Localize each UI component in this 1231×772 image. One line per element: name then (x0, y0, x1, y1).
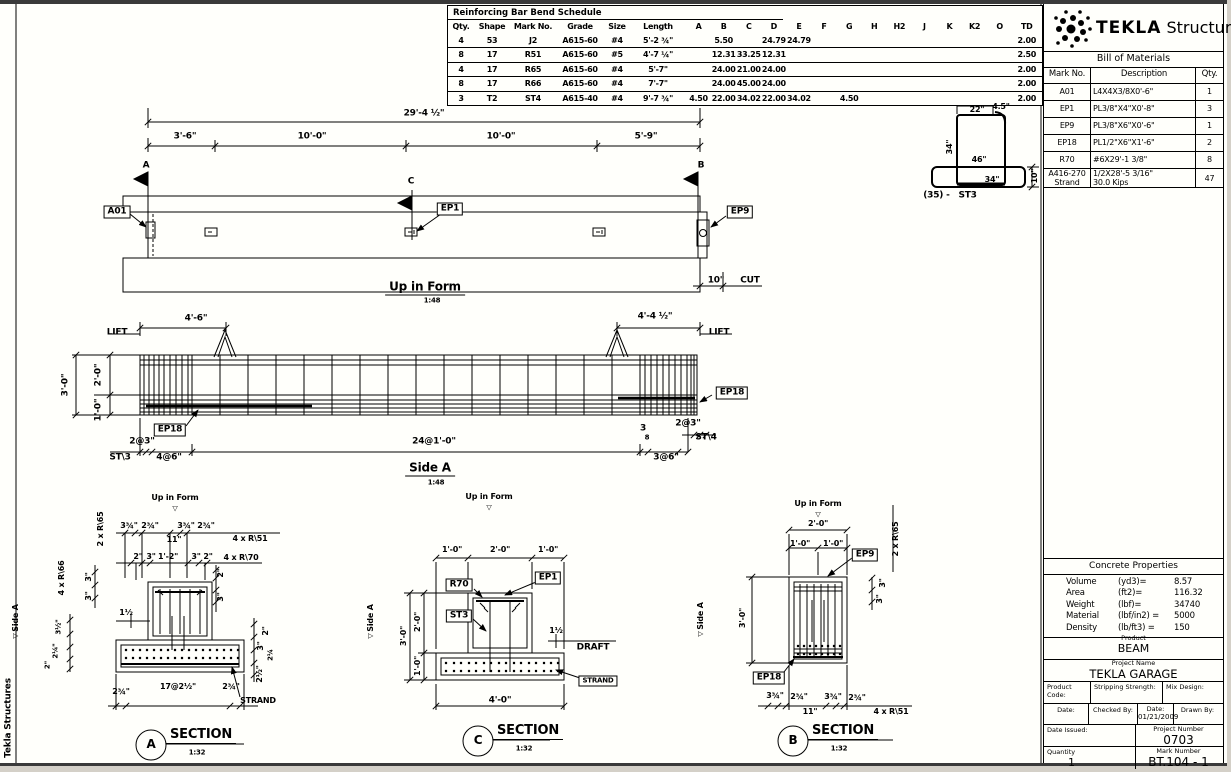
product-box: Product BEAM (1044, 634, 1223, 660)
date2-label: Date: (1138, 703, 1173, 713)
title-up-in-form: Up in Form (385, 281, 465, 296)
cell: Mark No. (1044, 67, 1091, 83)
concrete-row: Weight(lbf)=34740 (1044, 599, 1223, 611)
bom-row: A416-270 Strand1/2X28'-5 3/16" 30.0 Kips… (1044, 169, 1223, 188)
drawn-by-cell: Drawn By: (1174, 703, 1221, 724)
cell: Size (604, 22, 630, 31)
dim-a-mid-4: 3" (191, 553, 200, 561)
cell: H2 (887, 22, 912, 31)
date-issued-cell: Date Issued: (1044, 724, 1136, 747)
cell: #4 (604, 94, 630, 103)
dim-b-bot-11: 11" (803, 708, 818, 716)
checked-by-label: Checked By: (1089, 703, 1137, 714)
cell: K (937, 22, 962, 31)
dim-a-mid-3: 1'-2" (158, 553, 178, 561)
product-code-label: Product Code: (1044, 681, 1090, 699)
cell: F (811, 22, 836, 31)
cell: 24.00 (761, 65, 786, 74)
cell: #4 (604, 65, 630, 74)
project-label: Project Name (1044, 659, 1223, 667)
cell: EP9 (1044, 118, 1091, 134)
dim-a-top-11: 11" (167, 536, 182, 544)
label-up-in-form-c: Up in Form (465, 493, 512, 501)
up-arrow-c: ▽ (486, 505, 491, 512)
cell: PL3/8"X4"X0'-8" (1091, 101, 1196, 117)
cell: 1 (1196, 84, 1223, 100)
cell: 22.00 (711, 94, 736, 103)
cell: 45.00 (736, 79, 761, 88)
section-mark-a: A (143, 162, 150, 171)
cell: Qty. (1196, 67, 1223, 83)
cell: A01 (1044, 84, 1091, 100)
concrete-row: Material(lbf/in2) =5000 (1044, 611, 1223, 623)
dim-b-right-3a: 3" (879, 578, 887, 587)
cell: 4.50 (686, 94, 711, 103)
label-ep1-c: EP1 (535, 572, 561, 585)
cell: TD (1012, 22, 1041, 31)
cell: 4 (448, 65, 474, 74)
cell: C (736, 22, 761, 31)
cell: Grade (556, 22, 604, 31)
label-st3-shape: (35) - ST3 (923, 192, 977, 201)
cell: 24.00 (711, 65, 736, 74)
section-mark-b: B (698, 162, 705, 171)
cell: PL1/2"X6"X1'-6" (1091, 135, 1196, 151)
dim-st3-22: 22" (970, 106, 985, 114)
stripping-cell: Stripping Strength: (1091, 681, 1163, 703)
mix-design-label: Mix Design: (1163, 681, 1221, 691)
cell: 5000 (1174, 611, 1231, 621)
cell: 24.79 (761, 36, 786, 45)
label-ep9-b: EP9 (852, 549, 878, 562)
schedule-header-row: Qty.ShapeMark No.GradeSizeLengthABCDEFGH… (448, 20, 1042, 34)
cell: O (987, 22, 1012, 31)
dim-b-top-2: 1'-0" (823, 540, 843, 548)
cell: R51 (510, 50, 556, 59)
concrete-row: Area(ft2)=116.32 (1044, 588, 1223, 600)
cell: #5 (604, 50, 630, 59)
mark-number-value: BT.104 - 1 (1136, 755, 1221, 769)
quantity-row: Quantity 1 Mark Number BT.104 - 1 (1044, 746, 1223, 767)
dim-c-upper: 2'-0" (414, 612, 422, 632)
cell: 3 (1196, 101, 1223, 117)
cell: (lbf/in2) = (1118, 611, 1174, 621)
dim-c-top-3: 1'-0" (538, 546, 558, 554)
marker-side-a-1: Side A (12, 604, 20, 631)
label-r70-c: R70 (446, 579, 473, 592)
section-b-title: SECTION (808, 724, 878, 740)
label-4xr70-a: 4 x R\70 (224, 554, 259, 562)
mark-number-label: Mark Number (1136, 746, 1221, 755)
dim-st3-10: 10" (1031, 169, 1039, 184)
project-box: Project Name TEKLA GARAGE (1044, 659, 1223, 682)
label-cut: CUT (740, 277, 759, 286)
cell: T2 (474, 94, 510, 103)
dim-a-mid-5: 2" (203, 553, 212, 561)
label-up-in-form-a: Up in Form (151, 494, 198, 502)
dim-a-bot-1: 2¾" (112, 688, 129, 696)
cell: 9'-7 ¾" (630, 94, 686, 103)
cell: 2.50 (1012, 50, 1041, 59)
label-4xr51-a: 4 x R\51 (233, 535, 268, 543)
marker-side-a-3: Side A (697, 602, 705, 629)
quantity-label: Quantity (1044, 746, 1135, 756)
bom-header: Mark No.DescriptionQty. (1044, 67, 1223, 84)
label-ep9: EP9 (727, 206, 753, 219)
dim-sidea-depth: 3'-0" (62, 374, 71, 397)
date2-value: 01/21/2009 (1138, 713, 1173, 721)
dim-overall-length: 29'-4 ½" (404, 110, 445, 119)
dim-a-bot-3: 2¾" (222, 683, 239, 691)
dim-cut: 10" (708, 277, 725, 286)
issued-row: Date Issued: Project Number 0703 (1044, 724, 1223, 747)
section-c-scale: 1:32 (516, 746, 533, 753)
dim-b-bot-2: 2¾" (790, 693, 807, 701)
cell: Shape (474, 22, 510, 31)
cell: 53 (474, 36, 510, 45)
cell: 8 (448, 50, 474, 59)
bom-header-row: Mark No.DescriptionQty. (1044, 67, 1223, 84)
cell: 12.31 (761, 50, 786, 59)
dim-a-right-3: 3" (217, 592, 225, 601)
cell: Area (1066, 588, 1118, 598)
schedule-row: 417R65A615-60#45'-7"24.0021.0024.002.00 (448, 62, 1042, 77)
dim-a-strand-r4: 2½" (256, 665, 264, 682)
marker-side-a-1t: ▽ (13, 633, 20, 638)
cell: (yd3)= (1118, 577, 1174, 587)
schedule-title: Reinforcing Bar Bend Schedule (448, 6, 783, 20)
marker-side-a-2: Side A (367, 604, 375, 631)
schedule-row: 817R51A615-60#54'-7 ¼"12.3133.2512.312.5… (448, 47, 1042, 62)
dim-b-right-3b: 3" (876, 594, 884, 603)
cell: A615-60 (556, 65, 604, 74)
dim-seg-3: 10'-0" (487, 133, 516, 142)
bom-title: Bill of Materials (1044, 51, 1223, 68)
dim-st3-46: 46" (972, 156, 987, 164)
dim-lift-right: 4'-4 ½" (638, 313, 673, 322)
cell: Length (630, 22, 686, 31)
cell: ST4 (510, 94, 556, 103)
cell: 4 (448, 36, 474, 45)
marker-side-a-2t: ▽ (368, 633, 375, 638)
cell: #4 (604, 36, 630, 45)
cell: 24.79 (786, 36, 811, 45)
project-number-value: 0703 (1136, 733, 1221, 747)
schedule-row: 817R66A615-60#47'-7"24.0045.0024.002.00 (448, 76, 1042, 91)
cell: 24.00 (711, 79, 736, 88)
cell: (ft2)= (1118, 588, 1174, 598)
cell: 8.57 (1174, 577, 1231, 587)
cell: 17 (474, 65, 510, 74)
scale-up-in-form: 1:48 (424, 298, 441, 305)
dim-st3-45: 4.5" (992, 103, 1010, 111)
cell: 21.00 (736, 65, 761, 74)
cell: A (686, 22, 711, 31)
concrete-row: Volume(yd3)=8.57 (1044, 576, 1223, 588)
cell: 34.02 (786, 94, 811, 103)
label-st3-c: ST3 (446, 610, 472, 623)
cell: 5.50 (711, 36, 736, 45)
concrete-properties: Volume(yd3)=8.57Area(ft2)=116.32Weight(l… (1044, 573, 1223, 638)
dim-spacing-right-1: 2@3" (675, 420, 700, 429)
cell: A615-60 (556, 50, 604, 59)
codes-row: Product Code: Stripping Strength: Mix De… (1044, 681, 1223, 704)
cell: R65 (510, 65, 556, 74)
dim-b-top-1: 1'-0" (790, 540, 810, 548)
cell: 33.25 (736, 50, 761, 59)
cell: A416-270 Strand (1044, 169, 1091, 187)
dim-b-top: 2'-0" (808, 520, 828, 528)
cell: A615-40 (556, 94, 604, 103)
cell: Description (1091, 67, 1196, 83)
cell: Weight (1066, 600, 1118, 610)
cell: 17 (474, 79, 510, 88)
label-2xr65-a: 2 x R\65 (97, 512, 105, 547)
date-label: Date: (1044, 703, 1088, 714)
cell: 116.32 (1174, 588, 1231, 598)
cell: J (912, 22, 937, 31)
label-lift-right: LIFT (709, 329, 730, 338)
dim-a-top-3: 3¾" (177, 522, 194, 530)
dim-a-left-3a: 3" (85, 572, 93, 581)
dim-a-strand-l2: 2¼" (53, 643, 60, 658)
cell: R70 (1044, 152, 1091, 168)
dim-c-lower: 1'-0" (414, 656, 422, 676)
dim-b-bot-4: 2¾" (848, 694, 865, 702)
cell: 5'-7" (630, 65, 686, 74)
dim-a-right-2: 2" (217, 568, 225, 577)
dim-seg-1: 3'-6" (174, 133, 197, 142)
dim-spacing-left-2: 4@6" (156, 454, 181, 463)
quantity-value: 1 (1044, 756, 1135, 769)
dim-a-strand-r3: 2¼ (268, 649, 275, 661)
cell: L4X4X3/8X0'-6" (1091, 84, 1196, 100)
cell: 4'-7 ¼" (630, 50, 686, 59)
product-value: BEAM (1044, 642, 1223, 655)
cell: Qty. (448, 22, 474, 31)
cell: J2 (510, 36, 556, 45)
bom-row: R70#6X29'-1 3/8"8 (1044, 152, 1223, 169)
schedule-body: 453J2A615-60#45'-2 ¾"5.5024.7924.792.008… (448, 34, 1042, 106)
label-ep18-sidea-right: EP18 (716, 387, 748, 400)
schedule-row: 453J2A615-60#45'-2 ¾"5.5024.7924.792.00 (448, 34, 1042, 48)
section-b-letter: B (789, 734, 798, 746)
brand-header: TEKLA Structures (1044, 4, 1223, 52)
dim-seg-4: 5'-9" (635, 133, 658, 142)
title-side-a: Side A (405, 462, 455, 477)
tekla-logo-icon (1050, 7, 1094, 51)
cell: Material (1066, 611, 1118, 621)
cell: 1/2X28'-5 3/16" 30.0 Kips (1091, 169, 1196, 187)
dim-a-strand-l1: 3½" (56, 619, 63, 634)
dim-b-bot-1: 3¾" (766, 692, 783, 700)
bom-row: EP9PL3/8"X6"X0'-6"1 (1044, 118, 1223, 135)
dim-b-bot-3: 3¾" (824, 693, 841, 701)
cell: #6X29'-1 3/8" (1091, 152, 1196, 168)
dim-spacing-left-1: 2@3" (129, 438, 154, 447)
mix-design-cell: Mix Design: (1163, 681, 1221, 703)
stripping-label: Stripping Strength: (1091, 681, 1162, 691)
cell: A615-60 (556, 36, 604, 45)
date-cell: Date: (1044, 703, 1089, 724)
cell: 1 (1196, 118, 1223, 134)
dim-sidea-lower: 1'-0" (95, 399, 104, 422)
label-ep1: EP1 (437, 203, 463, 216)
brand-name: TEKLA Structures (1096, 18, 1231, 38)
cell: E (786, 22, 811, 31)
concrete-row: Density(lb/ft3) =150 (1044, 622, 1223, 634)
up-arrow-b: ▽ (815, 512, 820, 519)
cell: 34.02 (736, 94, 761, 103)
dim-c-bot: 4'-0" (489, 697, 512, 706)
dim-seg-2: 10'-0" (298, 133, 327, 142)
brand-name-bold: TEKLA (1096, 18, 1161, 38)
cell: 4.50 (837, 94, 862, 103)
dim-c-depth: 3'-0" (400, 626, 408, 646)
dim-a-top-2: 2¾" (141, 522, 158, 530)
cell: 2.00 (1012, 36, 1041, 45)
up-arrow-a: ▽ (172, 506, 177, 513)
label-a01: A01 (104, 206, 131, 219)
dim-a-bot-2: 17@2½" (160, 683, 196, 691)
dim-a-strand-r2: 3" (257, 641, 265, 650)
cell: 2.00 (1012, 79, 1041, 88)
cell: B (711, 22, 736, 31)
cell: PL3/8"X6"X0'-6" (1091, 118, 1196, 134)
label-strand-a: STRAND (240, 697, 276, 705)
dim-gap-num: 3 (640, 425, 646, 434)
dim-c-top-1: 1'-0" (442, 546, 462, 554)
label-lift-left: LIFT (107, 329, 128, 338)
schedule-header: Qty.ShapeMark No.GradeSizeLengthABCDEFGH… (448, 20, 1042, 34)
cell: (lb/ft3) = (1118, 623, 1174, 633)
date2-cell: Date: 01/21/2009 (1138, 703, 1174, 724)
bom-body: A01L4X4X3/8X0'-6"1EP1PL3/8"X4"X0'-8"3EP9… (1044, 84, 1223, 188)
label-4xr51-b: 4 x R\51 (874, 708, 909, 716)
cell: 7'-7" (630, 79, 686, 88)
drawing-sheet: Reinforcing Bar Bend Schedule Qty.ShapeM… (0, 0, 1231, 772)
cell: 3 (448, 94, 474, 103)
section-mark-c: C (408, 178, 414, 187)
section-c-letter: C (474, 734, 483, 746)
dim-a-top-4: 2¾" (197, 522, 214, 530)
project-value: TEKLA GARAGE (1044, 667, 1223, 681)
section-c-title: SECTION (493, 724, 563, 740)
cell: 150 (1174, 623, 1231, 633)
dim-a-top-1: 3¾" (120, 522, 137, 530)
cell: EP1 (1044, 101, 1091, 117)
cell: Density (1066, 623, 1118, 633)
bom-row: EP1PL3/8"X4"X0'-8"3 (1044, 101, 1223, 118)
scale-side-a: 1:48 (428, 480, 445, 487)
label-2xr65-b: 2 x R\65 (892, 522, 900, 557)
label-st4-sidea: ST\4 (695, 434, 716, 443)
cell: EP18 (1044, 135, 1091, 151)
label-draft-c: DRAFT (577, 644, 610, 653)
project-number-label: Project Number (1136, 724, 1221, 733)
section-a-title: SECTION (166, 728, 236, 744)
label-strand-c: STRAND (578, 676, 617, 687)
cell: D (761, 22, 786, 31)
label-st3-sidea: ST\3 (109, 454, 130, 463)
label-4xr66-a: 4 x R\66 (58, 561, 66, 596)
cell: 22.00 (761, 94, 786, 103)
dim-a-mid-2: 3" (146, 553, 155, 561)
cell: 2.00 (1012, 94, 1041, 103)
dim-a-strand-r1: 2" (262, 626, 270, 635)
dates-row: Date: Checked By: Date: 01/21/2009 Drawn… (1044, 703, 1223, 725)
cell: (lbf)= (1118, 600, 1174, 610)
section-a-letter: A (146, 738, 155, 750)
dim-gap-den: 8 (645, 435, 650, 442)
checked-by-cell: Checked By: (1089, 703, 1138, 724)
cell: 2.00 (1012, 65, 1041, 74)
sheet-side-label: Tekla Structures (5, 678, 14, 758)
cell: Volume (1066, 577, 1118, 587)
label-up-in-form-b: Up in Form (794, 500, 841, 508)
dim-st3-34b: 34" (985, 176, 1000, 184)
marker-side-a-3t: ▽ (698, 631, 705, 636)
dim-spacing-mid: 24@1'-0" (412, 438, 456, 447)
title-block-panel: TEKLA Structures Bill of Materials Mark … (1043, 4, 1224, 763)
dim-a-mid-1: 2" (133, 553, 142, 561)
dim-sidea-upper: 2'-0" (95, 364, 104, 387)
cell: A615-60 (556, 79, 604, 88)
dim-a-draft: 1½ (119, 609, 132, 617)
cell: 24.00 (761, 79, 786, 88)
dim-a-left-3b: 3" (85, 591, 93, 600)
quantity-cell: Quantity 1 (1044, 746, 1136, 769)
cell: Mark No. (510, 22, 556, 31)
mark-number-cell: Mark Number BT.104 - 1 (1136, 746, 1221, 769)
rebar-bend-schedule: Reinforcing Bar Bend Schedule Qty.ShapeM… (447, 5, 1043, 106)
label-ep18-b: EP18 (753, 672, 785, 685)
cell: #4 (604, 79, 630, 88)
dim-st3-34v: 34" (946, 140, 954, 155)
date-issued-label: Date Issued: (1044, 724, 1135, 734)
section-a-scale: 1:32 (189, 750, 206, 757)
dim-spacing-right-2: 3@6" (653, 454, 678, 463)
cell: R66 (510, 79, 556, 88)
cell: 12.31 (711, 50, 736, 59)
dim-c-draft: 1½ (549, 627, 562, 635)
cell: 2 (1196, 135, 1223, 151)
cell: 47 (1196, 169, 1223, 187)
cell: 34740 (1174, 600, 1231, 610)
dim-c-top-2: 2'-0" (490, 546, 510, 554)
section-b-scale: 1:32 (831, 746, 848, 753)
product-code-cell: Product Code: (1044, 681, 1091, 703)
product-label: Product (1044, 634, 1223, 642)
dim-lift-left: 4'-6" (185, 315, 208, 324)
drawn-by-label: Drawn By: (1174, 703, 1221, 714)
cell: K2 (962, 22, 987, 31)
dim-a-strand-l3: 2" (45, 661, 52, 669)
cell: G (837, 22, 862, 31)
project-number-cell: Project Number 0703 (1136, 724, 1221, 747)
cell: 5'-2 ¾" (630, 36, 686, 45)
cell: 17 (474, 50, 510, 59)
cell: H (862, 22, 887, 31)
schedule-row: 3T2ST4A615-40#49'-7 ¾"4.5022.0034.0222.0… (448, 91, 1042, 106)
bom-row: A01L4X4X3/8X0'-6"1 (1044, 84, 1223, 101)
label-ep18-sidea-left: EP18 (154, 424, 186, 437)
brand-name-light: Structures (1161, 18, 1231, 37)
bom-row: EP18PL1/2"X6"X1'-6"2 (1044, 135, 1223, 152)
dim-b-depth: 3'-0" (739, 608, 747, 628)
cell: 8 (448, 79, 474, 88)
cell: 8 (1196, 152, 1223, 168)
